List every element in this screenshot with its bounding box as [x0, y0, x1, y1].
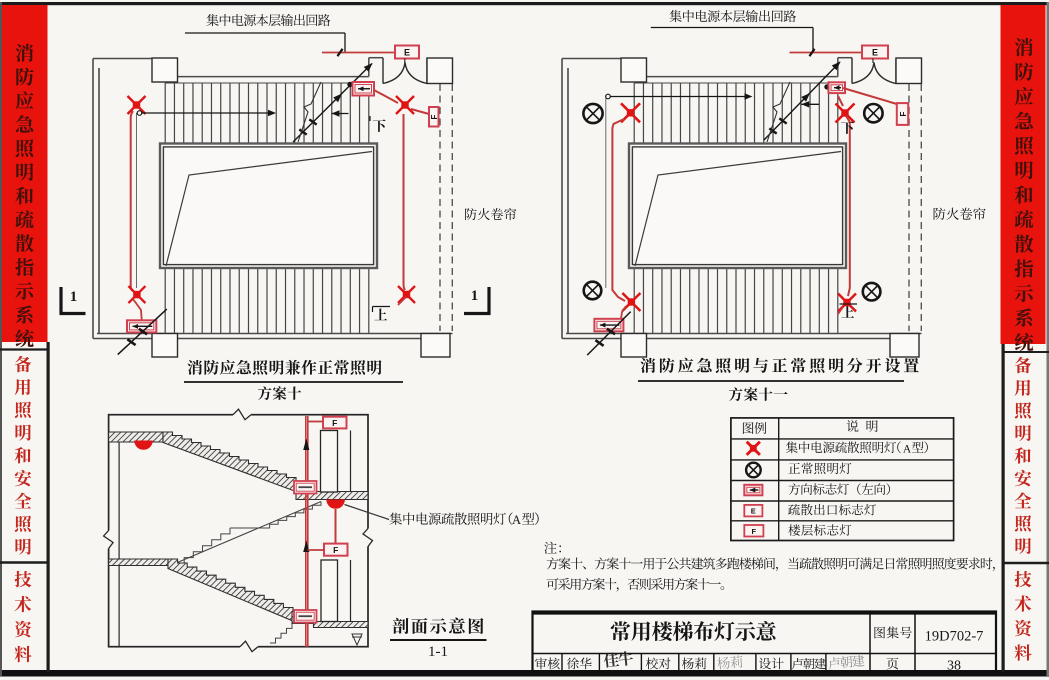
svg-text:E: E — [872, 48, 878, 58]
svg-text:E: E — [751, 507, 756, 516]
svg-text:F: F — [752, 527, 757, 536]
svg-text:38: 38 — [947, 659, 961, 674]
svg-text:A: A — [512, 513, 521, 527]
svg-text:A: A — [903, 443, 912, 455]
svg-text:F: F — [333, 545, 338, 555]
svg-text:F: F — [332, 418, 337, 428]
svg-text:1: 1 — [70, 289, 78, 305]
svg-text:E: E — [404, 48, 410, 58]
svg-text:19D702-7: 19D702-7 — [925, 629, 984, 645]
svg-text:F: F — [430, 114, 439, 119]
svg-text:1-1: 1-1 — [428, 644, 448, 660]
svg-text:1: 1 — [471, 288, 479, 304]
svg-text:F: F — [899, 111, 908, 116]
